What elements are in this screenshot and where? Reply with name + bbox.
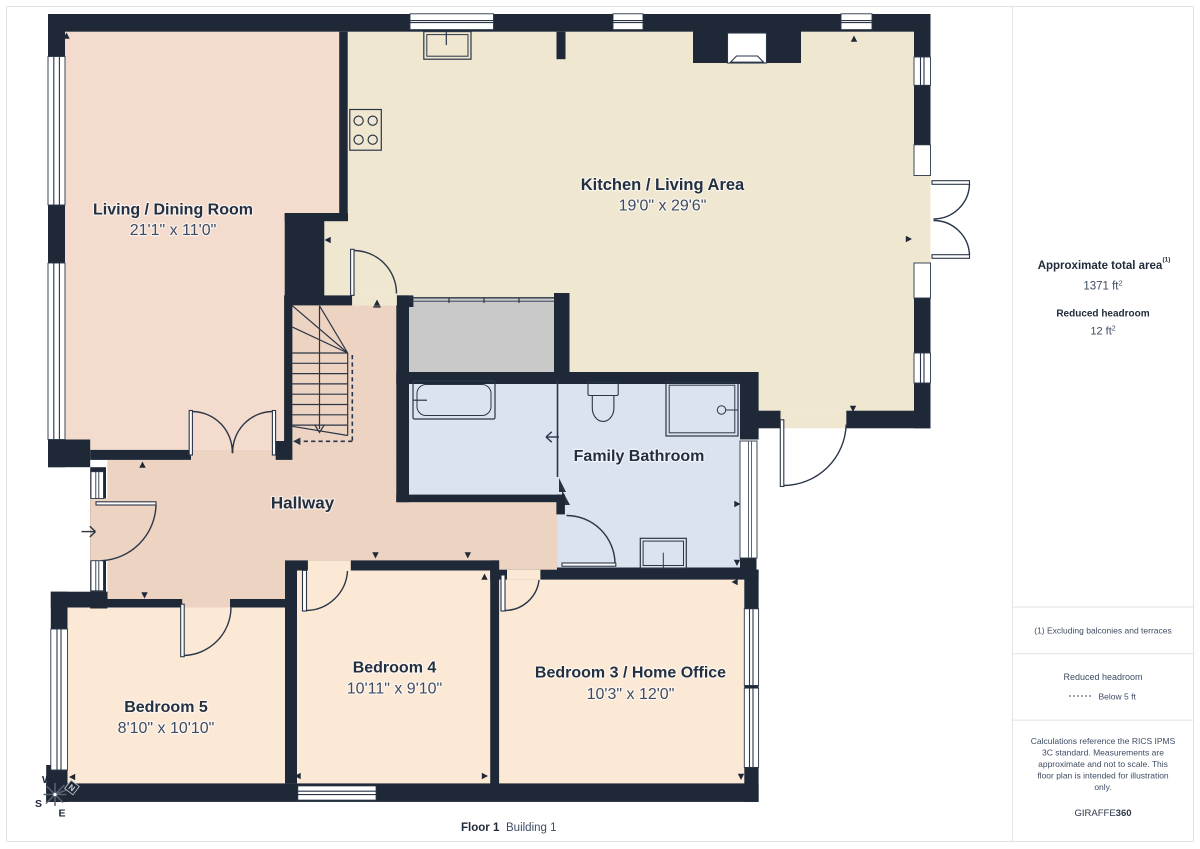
svg-text:GIRAFFE360: GIRAFFE360 <box>1074 808 1131 819</box>
svg-text:E: E <box>59 808 66 820</box>
svg-text:(1): (1) <box>1163 257 1171 264</box>
svg-text:3C standard. Measurements are: 3C standard. Measurements are <box>1042 748 1164 758</box>
svg-text:approximate and not to scale.: approximate and not to scale. This <box>1038 759 1168 769</box>
svg-text:(1) Excluding balconies and te: (1) Excluding balconies and terraces <box>1034 626 1172 636</box>
svg-text:10'11" x 9'10": 10'11" x 9'10" <box>347 681 442 698</box>
svg-text:8'10" x 10'10": 8'10" x 10'10" <box>118 720 215 737</box>
svg-text:Reduced headroom: Reduced headroom <box>1063 672 1142 682</box>
svg-text:S: S <box>35 798 42 810</box>
svg-text:Family Bathroom: Family Bathroom <box>574 448 705 465</box>
svg-text:Bedroom 3 / Home Office: Bedroom 3 / Home Office <box>535 665 726 682</box>
svg-text:Below 5 ft: Below 5 ft <box>1099 692 1137 702</box>
svg-text:Approximate total area: Approximate total area <box>1038 260 1163 272</box>
svg-text:W: W <box>42 774 52 786</box>
svg-text:Calculations reference the RIC: Calculations reference the RICS IPMS <box>1031 736 1176 746</box>
svg-text:floor plan is intended for ill: floor plan is intended for illustration <box>1037 771 1169 781</box>
svg-text:10'3" x 12'0": 10'3" x 12'0" <box>587 686 675 703</box>
svg-text:21'1" x 11'0": 21'1" x 11'0" <box>130 222 217 239</box>
svg-text:Bedroom 5: Bedroom 5 <box>124 699 208 716</box>
svg-text:1371 ft2: 1371 ft2 <box>1083 279 1122 293</box>
svg-text:Living / Dining Room: Living / Dining Room <box>93 202 253 219</box>
svg-text:Floor 1: Floor 1 <box>461 822 500 834</box>
svg-text:only.: only. <box>1094 782 1111 792</box>
svg-text:Building 1: Building 1 <box>506 822 557 834</box>
svg-text:Bedroom 4: Bedroom 4 <box>353 660 437 677</box>
svg-text:19'0" x 29'6": 19'0" x 29'6" <box>619 198 707 215</box>
svg-text:Kitchen / Living Area: Kitchen / Living Area <box>581 176 745 194</box>
svg-text:Reduced headroom: Reduced headroom <box>1056 309 1149 320</box>
svg-text:Hallway: Hallway <box>271 494 335 513</box>
